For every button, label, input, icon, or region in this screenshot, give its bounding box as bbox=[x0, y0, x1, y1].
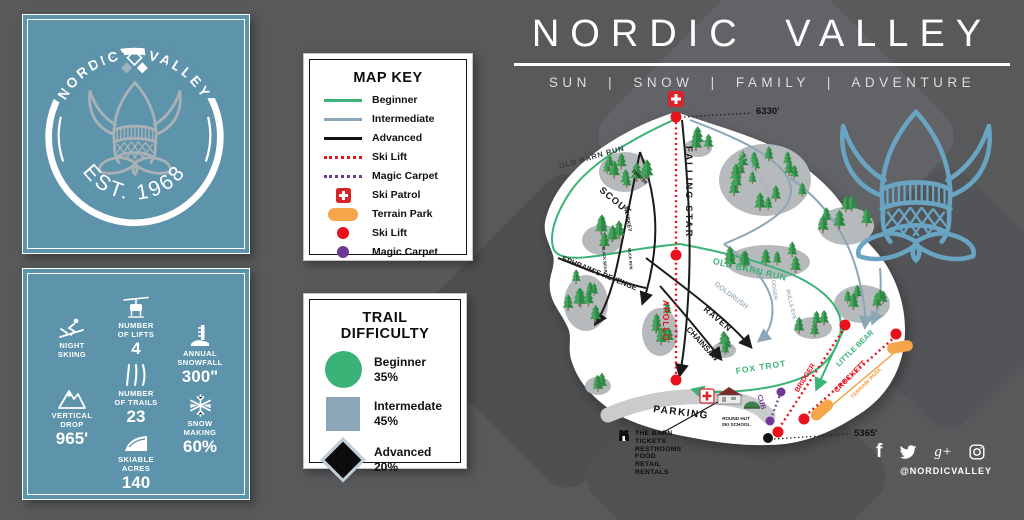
tagline: SUN | SNOW | FAMILY | ADVENTURE bbox=[512, 75, 1012, 90]
ski-patrol-marker bbox=[668, 91, 684, 107]
trail-difficulty-title: TRAIL DIFFICULTY bbox=[320, 310, 450, 342]
trails-icon bbox=[99, 363, 173, 387]
difficulty-row-beginner: Beginner 35% bbox=[320, 351, 450, 388]
stat-number-of-trails: NUMBER OF TRAILS 23 bbox=[99, 363, 173, 426]
advanced-percent: 20% bbox=[374, 460, 398, 474]
restrooms-icon bbox=[618, 430, 630, 441]
twitter-icon[interactable] bbox=[899, 445, 917, 460]
trail-difficulty-panel: TRAIL DIFFICULTY Beginner 35% Intermedat… bbox=[303, 293, 467, 469]
difficulty-row-advanced: Advanced 20% bbox=[320, 440, 450, 480]
advanced-diamond-icon bbox=[320, 437, 365, 482]
stats-panel: NIGHT SKIING NUMBER OF LIFTS 4 bbox=[22, 268, 250, 500]
lift-label: APOLLO bbox=[661, 300, 671, 341]
amenities-list: THE BARN TICKETS RESTROOMS FOOD RETAIL R… bbox=[635, 430, 682, 477]
title-rule bbox=[514, 63, 1010, 66]
badge-arc-text-left: NORDIC bbox=[54, 47, 122, 102]
stat-number-of-lifts: NUMBER OF LIFTS 4 bbox=[99, 295, 173, 358]
magic-carpet-dot-swatch bbox=[337, 246, 349, 258]
snow-gauge-icon bbox=[163, 323, 237, 347]
stat-skiable-acres: SKIABLE ACRES 140 bbox=[99, 429, 173, 492]
slope-icon bbox=[99, 429, 173, 453]
instagram-icon[interactable] bbox=[969, 444, 985, 460]
facebook-icon[interactable]: f bbox=[876, 443, 882, 461]
nordic-valley-infographic: NORDIC VALLEY EST. 1968 bbox=[0, 0, 1024, 520]
magic-carpet-dotted-swatch bbox=[324, 175, 362, 178]
intermediate-line-swatch bbox=[324, 118, 362, 121]
key-row-magic-carpet-line: Magic Carpet bbox=[320, 169, 456, 183]
chairlift-icon bbox=[99, 295, 173, 319]
difficulty-row-intermediate: Intermedate 45% bbox=[320, 397, 450, 431]
stat-snow-making: SNOW MAKING 60% bbox=[163, 393, 237, 456]
summit-elevation: 6330' bbox=[756, 106, 779, 117]
beginner-line-swatch bbox=[324, 99, 362, 102]
viking-helmet-icon bbox=[90, 83, 181, 175]
brand-badge: NORDIC VALLEY EST. 1968 bbox=[22, 14, 250, 254]
snowflake-icon bbox=[163, 393, 237, 417]
ski-patrol-cross-icon bbox=[336, 188, 351, 203]
skier-icon bbox=[35, 315, 109, 339]
badge-emblem: NORDIC VALLEY EST. 1968 bbox=[23, 15, 246, 250]
key-row-beginner: Beginner bbox=[320, 93, 456, 107]
google-plus-icon[interactable]: g+ bbox=[934, 444, 952, 461]
masthead: NORDIC VALLEY SUN | SNOW | FAMILY | ADVE… bbox=[512, 13, 1012, 90]
key-row-terrain-park: Terrain Park bbox=[320, 207, 456, 221]
key-row-ski-patrol: Ski Patrol bbox=[320, 188, 456, 202]
key-row-advanced: Advanced bbox=[320, 131, 456, 145]
stat-vertical-drop: VERTICAL DROP 965' bbox=[35, 385, 109, 448]
intermediate-percent: 45% bbox=[374, 414, 398, 428]
base-elevation: 5365' bbox=[854, 428, 877, 439]
advanced-line-swatch bbox=[324, 137, 362, 140]
key-row-magic-carpet-dot: Magic Carpet bbox=[320, 245, 456, 259]
stat-annual-snowfall: ANNUAL SNOWFALL 300" bbox=[163, 323, 237, 386]
ski-school-label: ROUND HUT bbox=[714, 416, 758, 421]
stat-night-skiing: NIGHT SKIING bbox=[35, 315, 109, 359]
ski-lift-dotted-swatch bbox=[324, 156, 362, 159]
viking-helmet-logo bbox=[830, 106, 1002, 271]
key-row-ski-lift-line: Ski Lift bbox=[320, 150, 456, 164]
base-amenities: THE BARN TICKETS RESTROOMS FOOD RETAIL R… bbox=[618, 430, 682, 477]
beginner-circle-icon bbox=[325, 351, 362, 388]
map-key-panel: MAP KEY Beginner Intermediate Advanced S… bbox=[303, 53, 473, 261]
ski-school-label: SKI SCHOOL bbox=[714, 422, 758, 427]
ski-patrol-marker bbox=[700, 389, 714, 403]
base-elevation-dot bbox=[763, 433, 773, 443]
intermediate-square-icon bbox=[326, 397, 360, 431]
mountain-icon bbox=[35, 385, 109, 409]
social-handle: @NORDICVALLEY bbox=[876, 466, 1016, 476]
beginner-percent: 35% bbox=[374, 370, 398, 384]
trail-label: FALLING STAR bbox=[683, 146, 694, 238]
map-key-title: MAP KEY bbox=[320, 70, 456, 86]
resort-title: NORDIC VALLEY bbox=[512, 13, 1012, 56]
ski-lift-dot-swatch bbox=[337, 227, 349, 239]
key-row-intermediate: Intermediate bbox=[320, 112, 456, 126]
terrain-park-swatch bbox=[328, 208, 358, 221]
key-row-ski-lift-dot: Ski Lift bbox=[320, 226, 456, 240]
social-footer: f g+ @NORDICVALLEY bbox=[876, 442, 1016, 476]
svg-text:NORDIC: NORDIC bbox=[54, 47, 122, 102]
